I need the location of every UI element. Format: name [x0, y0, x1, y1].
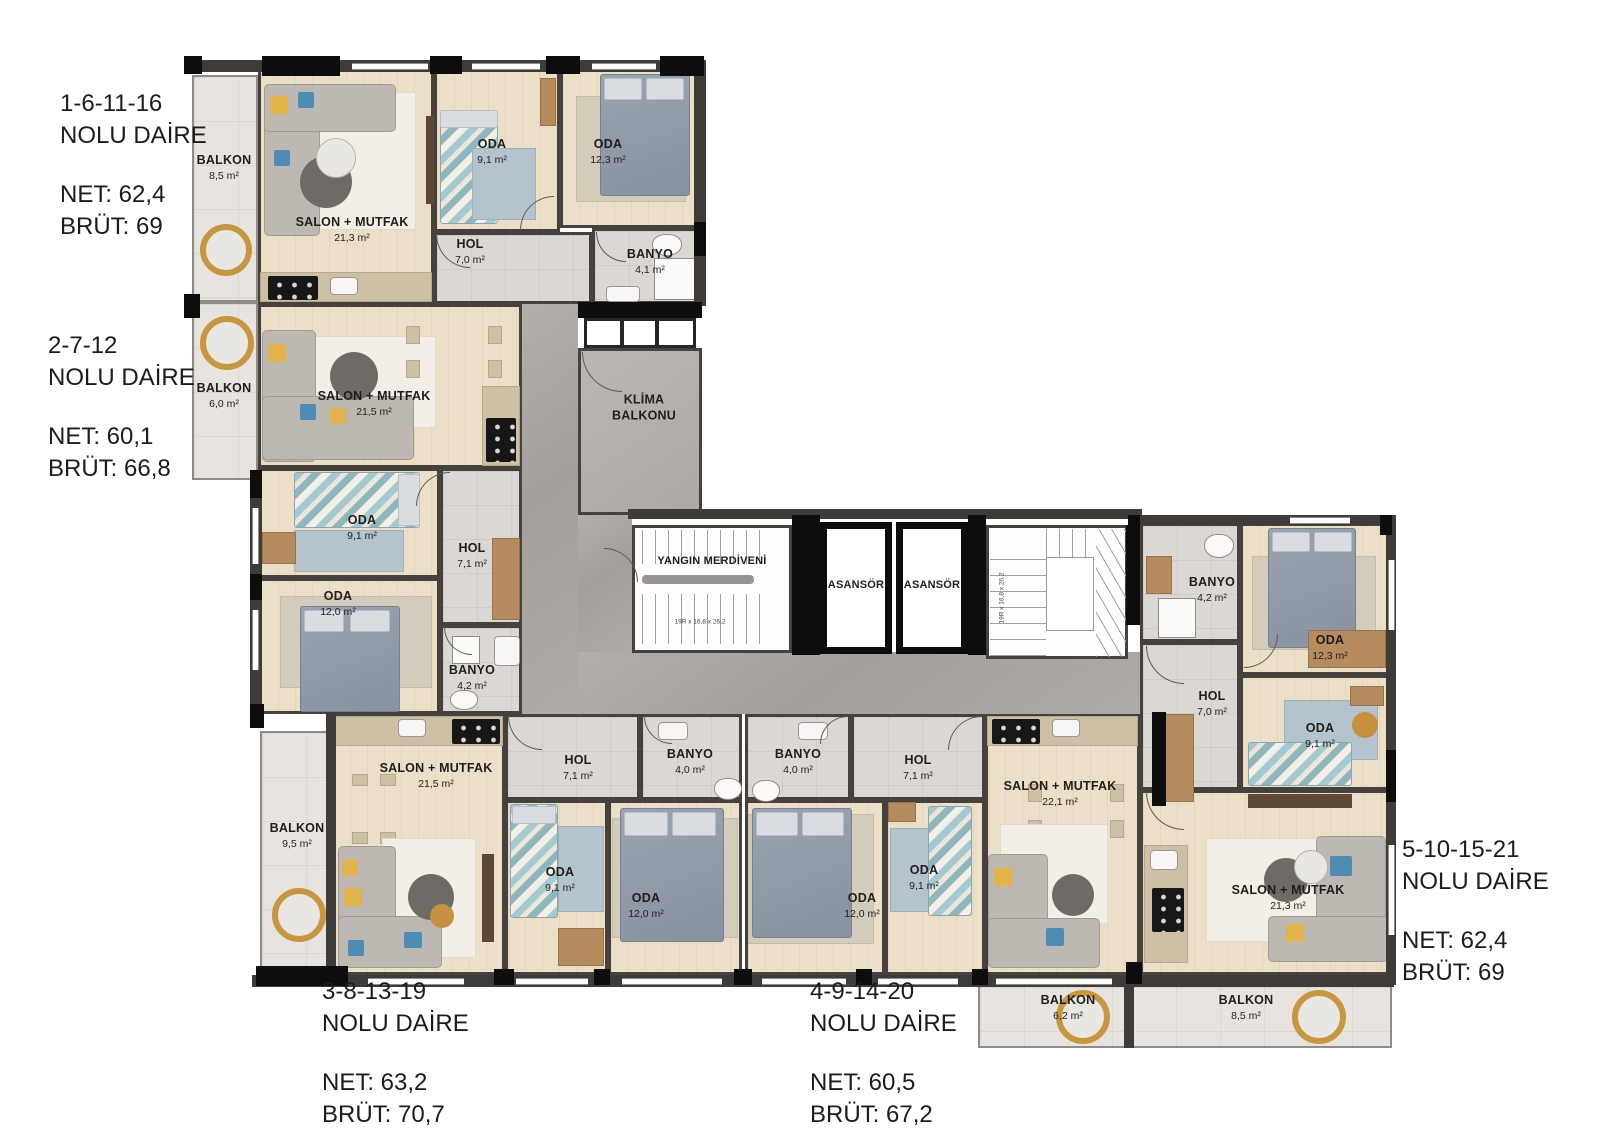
apartment-numbers: 2-7-12	[48, 330, 195, 362]
room-label: SALON + MUTFAK21,5 m²	[380, 761, 493, 791]
apartment-brut: BRÜT: 69	[60, 211, 207, 243]
room-label: ODA12,0 m²	[628, 891, 664, 921]
column-block	[262, 56, 340, 76]
tv-unit	[482, 854, 494, 942]
column-block	[184, 294, 200, 318]
window	[352, 63, 428, 70]
pillow	[646, 78, 684, 100]
stove	[992, 719, 1040, 744]
apartment-numbers: 3-8-13-19	[322, 976, 469, 1008]
pillow	[672, 812, 716, 836]
desk	[888, 802, 916, 822]
room-label-elevator-2: ASANSÖR	[904, 579, 960, 593]
window	[252, 610, 259, 670]
column-block	[250, 704, 264, 728]
cushion	[1330, 856, 1352, 876]
stove	[486, 418, 516, 462]
room-label: HOL7,0 m²	[1197, 689, 1227, 719]
apartment-brut: BRÜT: 67,2	[810, 1099, 957, 1131]
stove	[452, 719, 500, 744]
desk	[1350, 686, 1384, 706]
main-stair-treads-top	[1046, 529, 1098, 557]
daybed	[928, 806, 972, 916]
pillow	[1272, 532, 1310, 552]
wall-balcony45-divider	[1124, 985, 1134, 1048]
cushion	[300, 404, 316, 420]
cushion	[404, 932, 422, 948]
room-label: ODA12,0 m²	[320, 589, 356, 619]
window	[622, 978, 722, 985]
coffee-table	[1294, 850, 1328, 884]
bathroom-sink	[494, 636, 520, 666]
toilet	[1204, 534, 1234, 558]
column-block	[184, 56, 202, 74]
wall-apt1-right	[694, 60, 706, 306]
apartment-sub: NOLU DAİRE	[322, 1008, 469, 1040]
column-block	[546, 56, 580, 74]
tv-unit	[426, 116, 434, 204]
cushion	[274, 150, 290, 166]
apartment-annotation-5: 5-10-15-21 NOLU DAİRE NET: 62,4 BRÜT: 69	[1402, 834, 1549, 989]
window	[996, 978, 1112, 985]
corridor-vertical	[522, 302, 578, 714]
chair	[488, 360, 502, 378]
desk	[540, 78, 556, 126]
core-wall	[968, 515, 986, 655]
window	[252, 508, 259, 564]
room-label: BANYO4,2 m²	[449, 663, 495, 693]
main-stair-winders	[1096, 529, 1126, 657]
pillow	[624, 812, 668, 836]
column-block	[430, 56, 462, 74]
room-label: BALKON8,5 m²	[1219, 993, 1274, 1023]
main-stair-landing	[1046, 557, 1094, 631]
room-label: BANYO4,1 m²	[627, 247, 673, 277]
room-label: SALON + MUTFAK21,3 m²	[1232, 883, 1345, 913]
apartment-sub: NOLU DAİRE	[48, 362, 195, 394]
kitchen-sink	[398, 719, 426, 737]
apartment-sub: NOLU DAİRE	[810, 1008, 957, 1040]
room-label-elevator-1: ASANSÖR	[828, 579, 884, 593]
room-label: BALKON6,0 m²	[197, 381, 252, 411]
room-label: ODA9,1 m²	[477, 137, 507, 167]
wardrobe	[558, 928, 604, 966]
cushion	[270, 96, 288, 114]
apartment-sub: NOLU DAİRE	[1402, 866, 1549, 898]
room-label: ODA12,0 m²	[844, 891, 880, 921]
column-block	[1126, 962, 1142, 984]
stove	[268, 276, 318, 300]
daybed	[1248, 742, 1352, 786]
column-block	[594, 969, 610, 985]
room-label: HOL7,1 m²	[457, 541, 487, 571]
apartment-annotation-3: 3-8-13-19 NOLU DAİRE NET: 63,2 BRÜT: 70,…	[322, 976, 469, 1131]
room-label: SALON + MUTFAK21,3 m²	[296, 215, 409, 245]
toilet	[752, 780, 780, 802]
apartment-brut: BRÜT: 70,7	[322, 1099, 469, 1131]
coffee-table	[1052, 874, 1094, 916]
cushion	[344, 888, 362, 906]
dining-table	[422, 312, 486, 404]
dining-table	[344, 788, 416, 830]
column-block	[972, 969, 988, 985]
room-label: BANYO4,0 m²	[667, 747, 713, 777]
chair	[352, 774, 368, 786]
balcony-table	[200, 316, 254, 370]
column-block	[734, 969, 752, 985]
coffee-table	[316, 138, 356, 178]
room-label: ODA12,3 m²	[1312, 633, 1348, 663]
pillow	[604, 78, 642, 100]
column-block	[694, 222, 706, 256]
corridor-horizontal	[578, 652, 1140, 714]
desk	[262, 532, 296, 564]
fire-stair-handrail	[642, 575, 754, 584]
toilet	[450, 690, 478, 710]
column-block	[494, 969, 514, 985]
corridor-core-left	[578, 515, 632, 652]
cushion	[268, 344, 286, 362]
column-block	[250, 470, 262, 498]
chair	[1352, 712, 1378, 738]
pillow	[440, 110, 498, 128]
apartment-numbers: 4-9-14-20	[810, 976, 957, 1008]
room-label: HOL7,0 m²	[455, 237, 485, 267]
window	[1388, 845, 1395, 935]
chair	[488, 326, 502, 344]
cushion	[1046, 928, 1064, 946]
stair-spec: 19R x 16,8 x 26,2	[675, 619, 726, 626]
room-label: ODA12,3 m²	[590, 137, 626, 167]
window	[1388, 560, 1395, 630]
chair	[352, 832, 368, 844]
wardrobe	[492, 538, 520, 620]
core-wall	[1126, 525, 1140, 625]
apartment-annotation-4: 4-9-14-20 NOLU DAİRE NET: 60,5 BRÜT: 67,…	[810, 976, 957, 1131]
room-label: SALON + MUTFAK21,5 m²	[318, 389, 431, 419]
apartment-annotation-2: 2-7-12 NOLU DAİRE NET: 60,1 BRÜT: 66,8	[48, 330, 195, 485]
kitchen-sink	[1150, 850, 1178, 870]
cushion	[994, 868, 1012, 886]
wall-core-top	[628, 509, 1142, 519]
balcony-table	[1292, 990, 1346, 1044]
column-block	[1152, 712, 1166, 806]
room-label: BANYO4,2 m²	[1189, 575, 1235, 605]
apartment-sub: NOLU DAİRE	[60, 120, 207, 152]
balcony-table	[200, 224, 252, 276]
room-label: ODA9,1 m²	[909, 863, 939, 893]
kitchen-sink	[330, 277, 358, 295]
sofa	[988, 918, 1100, 968]
apartment-net: NET: 62,4	[60, 179, 207, 211]
floor-plan: BALKON8,5 m² SALON + MUTFAK21,3 m² ODA9,…	[0, 0, 1600, 1131]
room-label: BALKON6,2 m²	[1041, 993, 1096, 1023]
chair	[1110, 820, 1124, 838]
apartment-net: NET: 63,2	[322, 1067, 469, 1099]
side-table	[430, 904, 454, 928]
service-shaft	[584, 318, 696, 348]
window	[592, 63, 656, 70]
window	[472, 63, 540, 70]
room-label: ODA9,1 m²	[1305, 721, 1335, 751]
apartment-brut: BRÜT: 66,8	[48, 453, 195, 485]
room-label: SALON + MUTFAK22,1 m²	[1004, 779, 1117, 809]
wall-rightwing-top	[1130, 515, 1392, 525]
shaft-wall	[578, 302, 702, 318]
bathroom-counter	[1146, 556, 1172, 594]
balcony-table	[272, 888, 326, 942]
room-label-klima: KLİMA BALKONU	[612, 392, 676, 423]
window	[1290, 517, 1350, 524]
chair	[406, 360, 420, 378]
room-label-fire-stairs: YANGIN MERDİVENİ	[657, 555, 766, 569]
column-block	[250, 574, 262, 600]
pillow	[1314, 532, 1352, 552]
wardrobe	[1164, 714, 1194, 802]
stove	[1152, 888, 1184, 932]
apartment-numbers: 5-10-15-21	[1402, 834, 1549, 866]
column-block	[1380, 515, 1392, 535]
wall-balcony3-divider	[326, 712, 336, 977]
column-block	[660, 56, 704, 76]
apartment-net: NET: 60,1	[48, 421, 195, 453]
tv-unit	[1248, 794, 1352, 808]
chair	[406, 326, 420, 344]
cushion	[342, 860, 358, 876]
pillow	[802, 812, 844, 836]
cushion	[298, 92, 314, 108]
pillow	[756, 812, 798, 836]
apartment-brut: BRÜT: 69	[1402, 957, 1549, 989]
toilet	[714, 778, 742, 800]
apartment-numbers: 1-6-11-16	[60, 88, 207, 120]
room-label: HOL7,1 m²	[903, 753, 933, 783]
room-label: ODA9,1 m²	[545, 865, 575, 895]
cushion	[1286, 924, 1304, 942]
room-label: BALKON9,5 m²	[270, 821, 325, 851]
stair-spec: 19R x 16,8 x 26,2	[999, 573, 1006, 624]
column-block	[1386, 750, 1396, 802]
room-label: ODA9,1 m²	[347, 513, 377, 543]
kitchen-sink	[1052, 719, 1080, 737]
room-label: BANYO4,0 m²	[775, 747, 821, 777]
apartment-net: NET: 60,5	[810, 1067, 957, 1099]
bathroom-sink	[606, 286, 640, 302]
window	[516, 978, 588, 985]
room-label: HOL7,1 m²	[563, 753, 593, 783]
apartment-annotation-1: 1-6-11-16 NOLU DAİRE NET: 62,4 BRÜT: 69	[60, 88, 207, 243]
cushion	[348, 940, 364, 956]
core-wall	[792, 515, 820, 655]
apartment-net: NET: 62,4	[1402, 925, 1549, 957]
pillow	[512, 806, 556, 824]
